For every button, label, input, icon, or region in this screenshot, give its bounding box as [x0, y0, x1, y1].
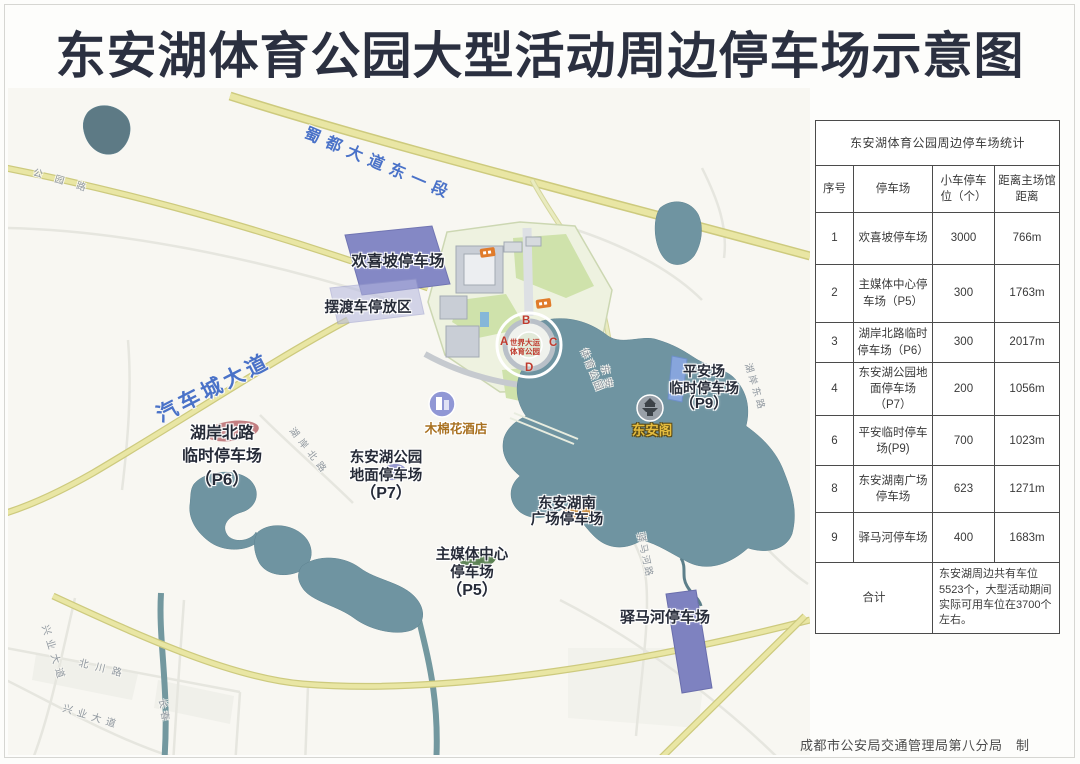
gate-a-label: A: [500, 336, 508, 348]
table-row: 3湖岸北路临时停车场（P6） 3002017m: [816, 323, 1060, 363]
gate-d-label: D: [525, 362, 533, 374]
table-title: 东安湖体育公园周边停车场统计: [816, 121, 1060, 166]
col-header-lot: 停车场: [854, 166, 933, 213]
lot-label-p6: 湖岸北路 临时停车场 （P6）: [147, 422, 297, 491]
hotel-icon: [429, 391, 455, 417]
lot-label-p7: 东安湖公园 地面停车场 （P7）: [311, 450, 461, 503]
lot-label-p9: 平安场 临时停车场 （P9）: [639, 363, 769, 413]
table-row: 8东安湖南广场停车场 6231271m: [816, 466, 1060, 513]
nw-pond: [83, 106, 130, 155]
lot-label-p5: 主媒体中心 停车场 （P5）: [397, 547, 547, 600]
table-total-row: 合计 东安湖周边共有车位5523个，大型活动期间实际可用车位在3700个左右。: [816, 563, 1060, 634]
gate-b-label: B: [522, 315, 530, 327]
col-header-no: 序号: [816, 166, 854, 213]
gate-c-label: C: [549, 337, 557, 349]
total-label: 合计: [816, 563, 933, 634]
table-row: 1欢喜坡停车场 3000766m: [816, 213, 1060, 265]
hotel-label: 木棉花酒店: [406, 418, 506, 437]
page-title: 东安湖体育公园大型活动周边停车场示意图: [0, 16, 1080, 88]
ne-pond: [655, 202, 701, 265]
table-row: 4东安湖公园地面停车场（P7） 2001056m: [816, 363, 1060, 416]
lot-label-ferry-area: 摆渡车停放区: [278, 296, 458, 317]
lot-label-yimahe: 驿马河停车场: [585, 606, 745, 627]
poster: 东安湖体育公园大型活动周边停车场示意图: [0, 0, 1080, 764]
map: 蜀都大道东一段 汽车城大道 公园路 湖岸北路 湖岸东路 东安 驿马河路 体育公园…: [8, 88, 810, 755]
col-header-spaces: 小车停车位（个）: [933, 166, 995, 213]
table-row: 6平安临时停车场(P9) 7001023m: [816, 416, 1060, 466]
total-note: 东安湖周边共有车位5523个，大型活动期间实际可用车位在3700个左右。: [933, 563, 1060, 634]
credit-line: 成都市公安局交通管理局第八分局 制: [800, 735, 1060, 754]
col-header-distance: 距离主场馆距离: [995, 166, 1060, 213]
lot-label-south-plaza: 东安湖南 广场停车场: [492, 497, 642, 528]
table-row: 9驿马河停车场 4001683m: [816, 513, 1060, 563]
table-row: 2主媒体中心停车场（P5） 3001763m: [816, 265, 1060, 323]
dongange-label: 东安阁: [612, 419, 692, 439]
parking-stats-table: 东安湖体育公园周边停车场统计 序号 停车场 小车停车位（个） 距离主场馆距离 1…: [815, 120, 1060, 634]
lot-label-huanxipo: 欢喜坡停车场: [308, 249, 488, 271]
